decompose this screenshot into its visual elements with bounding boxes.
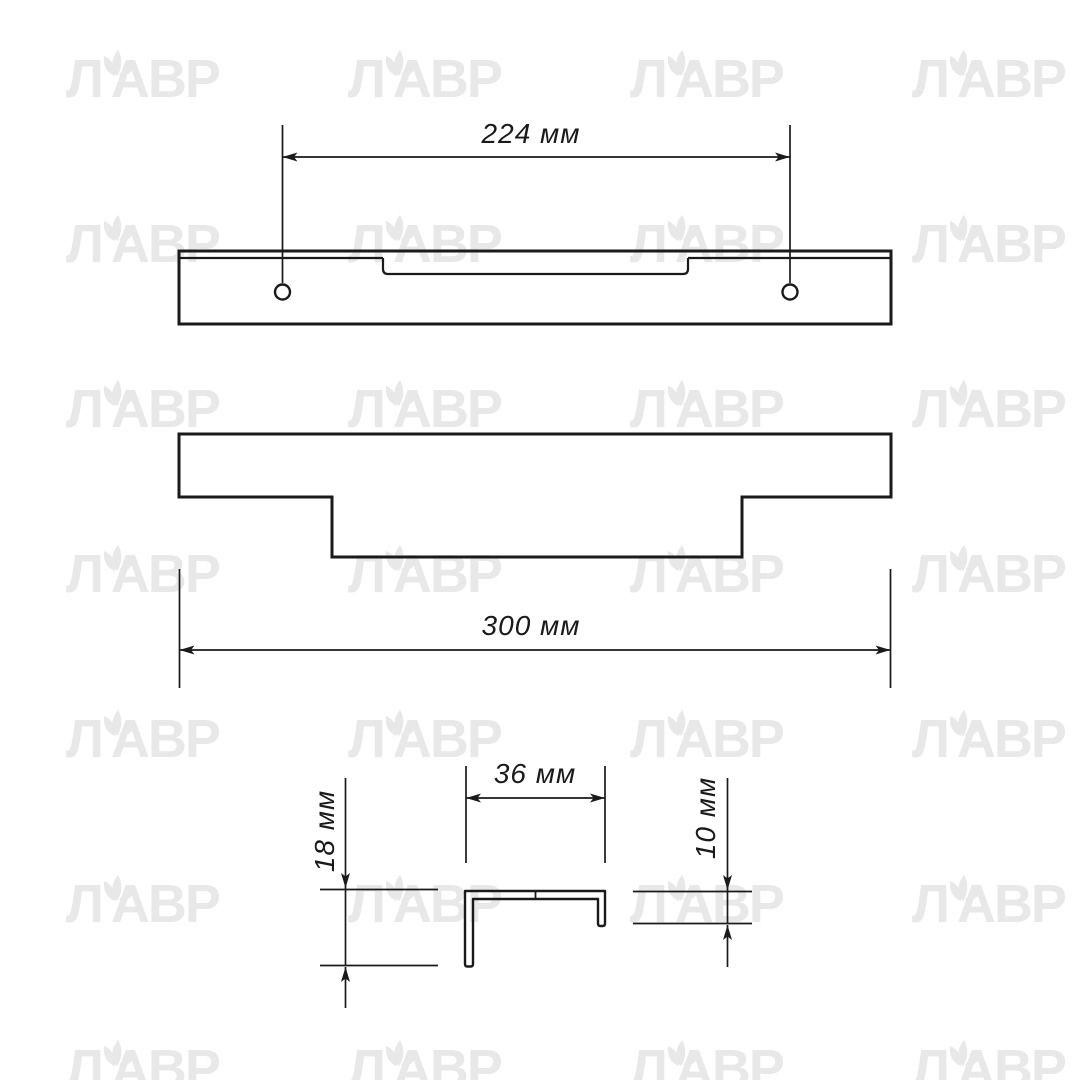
dim-label-lip-height: 10 мм — [690, 777, 722, 859]
front-view-outline — [179, 434, 891, 557]
drawing-canvas: Л АВР Л АВР Л АВР Л АВР — [0, 0, 1079, 1080]
dimension-10-ticks — [633, 892, 752, 924]
front-view — [179, 434, 891, 557]
dimension-18-ticks — [320, 890, 438, 966]
dim-label-hole-spacing: 224 мм — [482, 118, 581, 150]
dim-label-profile-height: 18 мм — [309, 790, 341, 872]
section-view — [465, 891, 605, 967]
dim-label-profile-width: 36 мм — [494, 758, 576, 790]
section-profile-outline — [465, 891, 605, 967]
mounting-hole-left — [275, 285, 290, 300]
drawing-lines — [0, 0, 1079, 1080]
top-view — [179, 251, 891, 324]
top-view-finger-recess — [383, 258, 688, 274]
mounting-hole-right — [783, 285, 798, 300]
dim-label-total-length: 300 мм — [482, 610, 581, 642]
